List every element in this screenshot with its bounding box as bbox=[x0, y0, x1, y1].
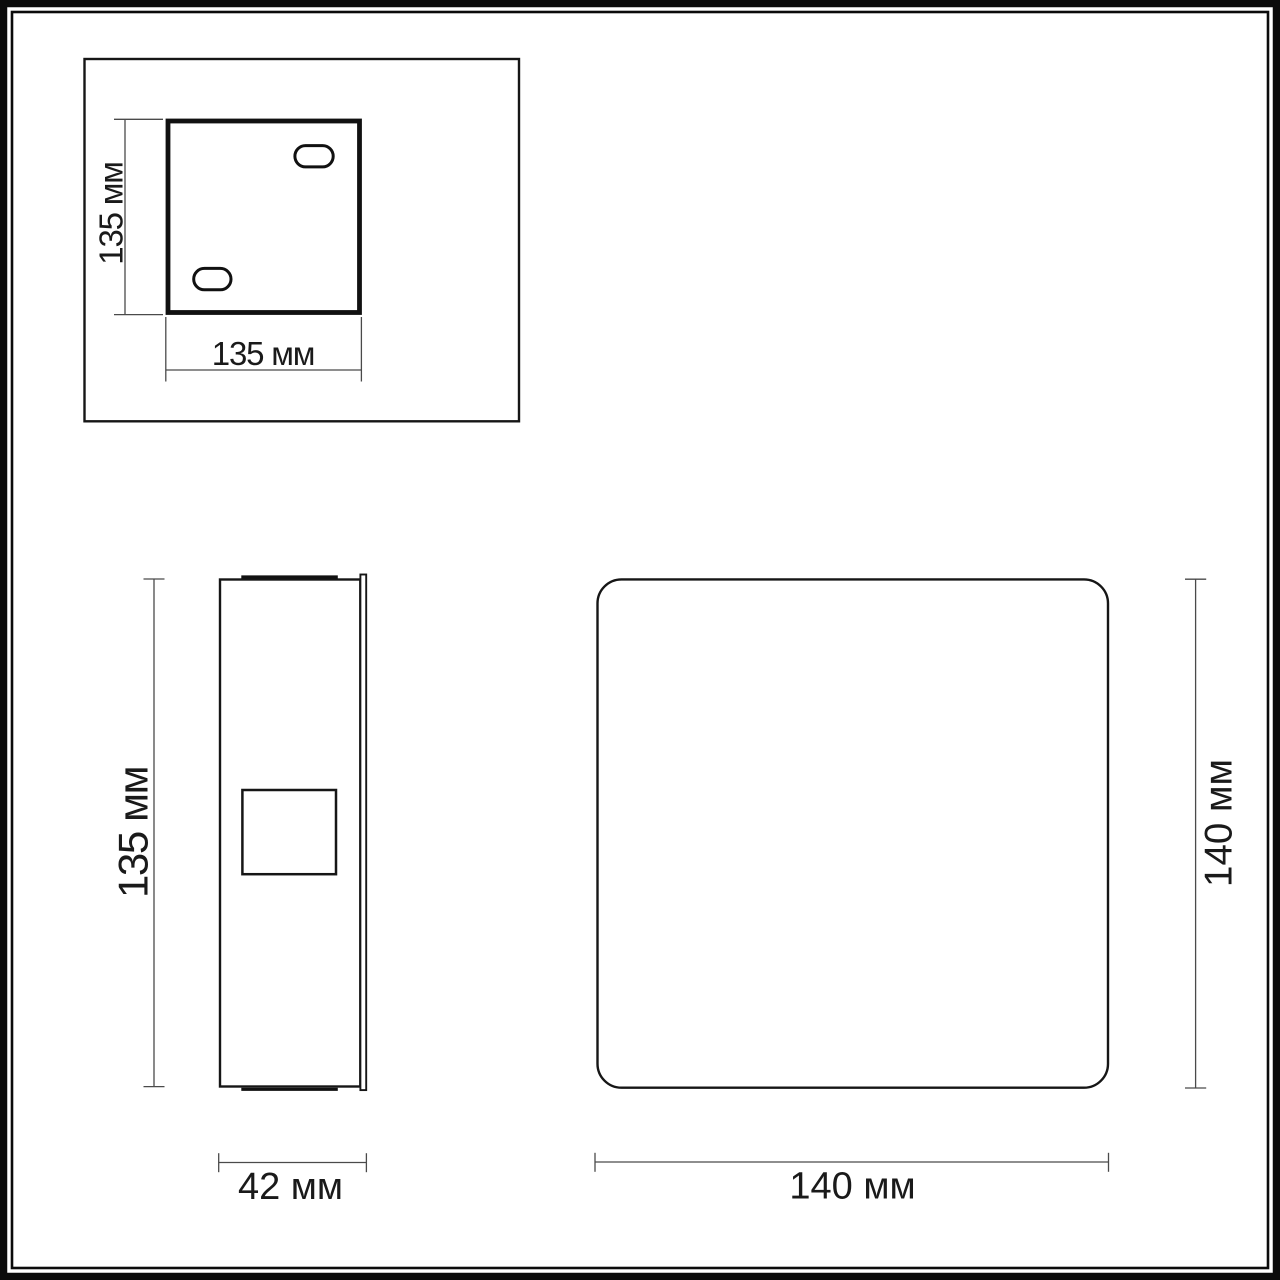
svg-text:140 мм: 140 мм bbox=[1198, 759, 1241, 887]
svg-text:135 мм: 135 мм bbox=[110, 767, 157, 898]
svg-text:42 мм: 42 мм bbox=[238, 1166, 343, 1208]
svg-text:135 мм: 135 мм bbox=[93, 162, 130, 264]
svg-text:140 мм: 140 мм bbox=[789, 1166, 915, 1208]
svg-text:135 мм: 135 мм bbox=[212, 335, 314, 372]
